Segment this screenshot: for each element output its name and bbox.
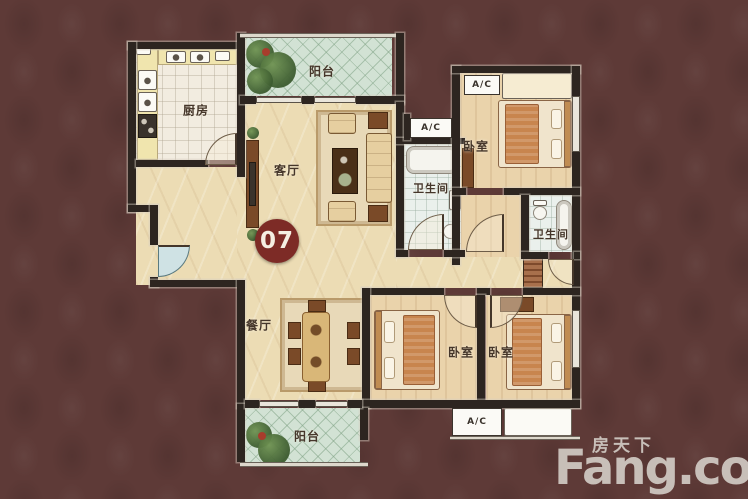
- wall-segment: [245, 400, 259, 408]
- dining-chair: [347, 348, 360, 365]
- ac-unit-top: A/C: [464, 75, 500, 95]
- wall-segment: [477, 295, 485, 400]
- toilet: [533, 206, 547, 220]
- armchair: [328, 201, 356, 222]
- wall-segment: [237, 404, 245, 462]
- bed: [498, 100, 572, 168]
- room-label-bedroom-bottom-right: 卧室: [488, 344, 514, 361]
- shower-tub: [556, 200, 572, 250]
- wall-segment: [348, 400, 362, 408]
- plant-pot: [247, 127, 259, 139]
- room-label-living: 客厅: [274, 162, 300, 179]
- wall-segment: [521, 195, 529, 259]
- plant: [247, 68, 273, 94]
- wall-segment: [396, 250, 408, 257]
- coffee-table: [332, 148, 358, 194]
- room-label-balcony-top: 阳台: [309, 63, 335, 80]
- bed: [506, 314, 572, 390]
- unit-number-badge: 07: [255, 219, 299, 263]
- wall-segment: [362, 288, 370, 408]
- kitchen-tray: [215, 51, 230, 61]
- room-label-kitchen: 厨房: [183, 102, 209, 119]
- tv-screen: [249, 162, 256, 206]
- ac-unit-middle: A/C: [410, 118, 452, 138]
- wall-segment: [128, 42, 136, 212]
- window: [572, 96, 580, 152]
- floorplan-image: A/C A/C A/C 厨房 阳台 客厅 卧室 卫生间 卫生间 餐厅 卧室 卧室…: [0, 0, 748, 499]
- dining-chair: [347, 322, 360, 339]
- bathtub: [406, 146, 458, 174]
- passage-floor: [396, 257, 529, 288]
- wall-segment: [523, 288, 580, 295]
- room-label-bedroom-top-right: 卧室: [463, 138, 489, 155]
- wall-segment: [362, 400, 580, 408]
- kitchen-stove: [138, 114, 157, 138]
- wall-segment: [452, 66, 460, 265]
- window: [314, 97, 356, 103]
- wall-segment: [452, 66, 580, 73]
- wall-segment: [521, 252, 548, 259]
- wall-segment: [504, 188, 580, 195]
- wall-segment: [444, 250, 465, 257]
- armchair: [328, 113, 356, 134]
- plant-flower: [262, 48, 270, 56]
- wall-segment: [477, 288, 490, 295]
- wall-segment: [150, 205, 158, 245]
- room-label-bath-right: 卫生间: [533, 226, 569, 242]
- window: [256, 97, 302, 103]
- wall-segment: [240, 96, 256, 104]
- wall-segment: [128, 42, 245, 49]
- wall-segment: [237, 280, 245, 408]
- side-table: [368, 205, 388, 222]
- wall-segment: [302, 96, 314, 104]
- plant-flower: [258, 432, 266, 440]
- sofa: [366, 133, 392, 203]
- kitchen-sink: [190, 51, 210, 63]
- window: [572, 310, 580, 368]
- dining-chair: [308, 300, 326, 312]
- kitchen-appliance: [138, 92, 157, 112]
- room-label-balcony-bottom: 阳台: [294, 428, 320, 445]
- side-table: [368, 112, 388, 129]
- balcony-rail: [240, 33, 396, 38]
- wall-segment: [150, 280, 245, 287]
- wall-segment: [299, 400, 315, 408]
- wall-segment: [360, 408, 368, 440]
- wall-segment: [396, 33, 404, 102]
- wall-segment: [362, 288, 444, 295]
- dining-chair: [288, 322, 301, 339]
- watermark-logo: Fang.com: [554, 444, 748, 492]
- room-label-dining: 餐厅: [246, 317, 272, 334]
- dining-chair: [288, 348, 301, 365]
- window: [315, 401, 348, 407]
- dining-table: [302, 312, 330, 382]
- room-label-bath-middle: 卫生间: [413, 180, 449, 196]
- window: [259, 401, 299, 407]
- wall-segment: [452, 188, 466, 195]
- duct: [523, 257, 543, 288]
- kitchen-sink: [166, 51, 186, 63]
- balcony-rail: [240, 462, 368, 467]
- wall-segment: [396, 102, 404, 257]
- wall-segment: [237, 33, 245, 177]
- wall-segment: [574, 252, 580, 259]
- bay-window-seat: [502, 73, 572, 99]
- bed: [374, 310, 440, 390]
- ac-unit-bottom: A/C: [452, 408, 502, 436]
- kitchen-appliance: [138, 70, 157, 90]
- room-label-bedroom-bottom-middle: 卧室: [448, 344, 474, 361]
- bay-window-ledge: [504, 408, 572, 436]
- wall-segment: [136, 160, 208, 167]
